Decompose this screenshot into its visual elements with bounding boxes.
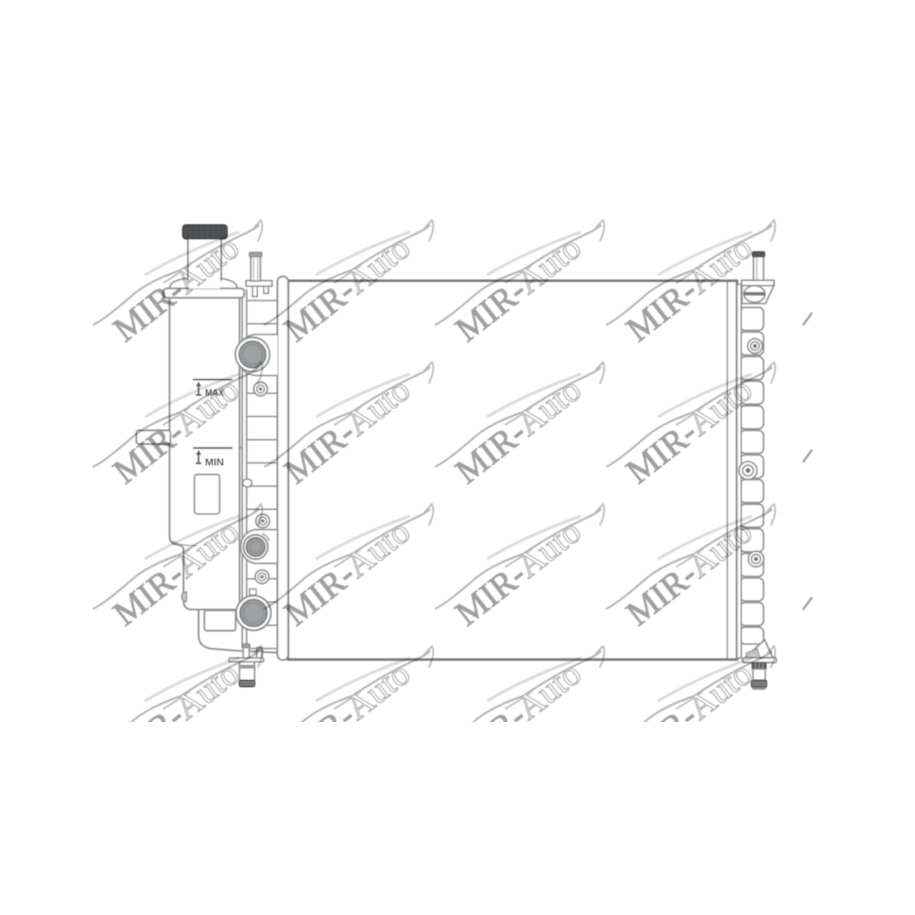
svg-text:MIN: MIN xyxy=(205,458,224,469)
